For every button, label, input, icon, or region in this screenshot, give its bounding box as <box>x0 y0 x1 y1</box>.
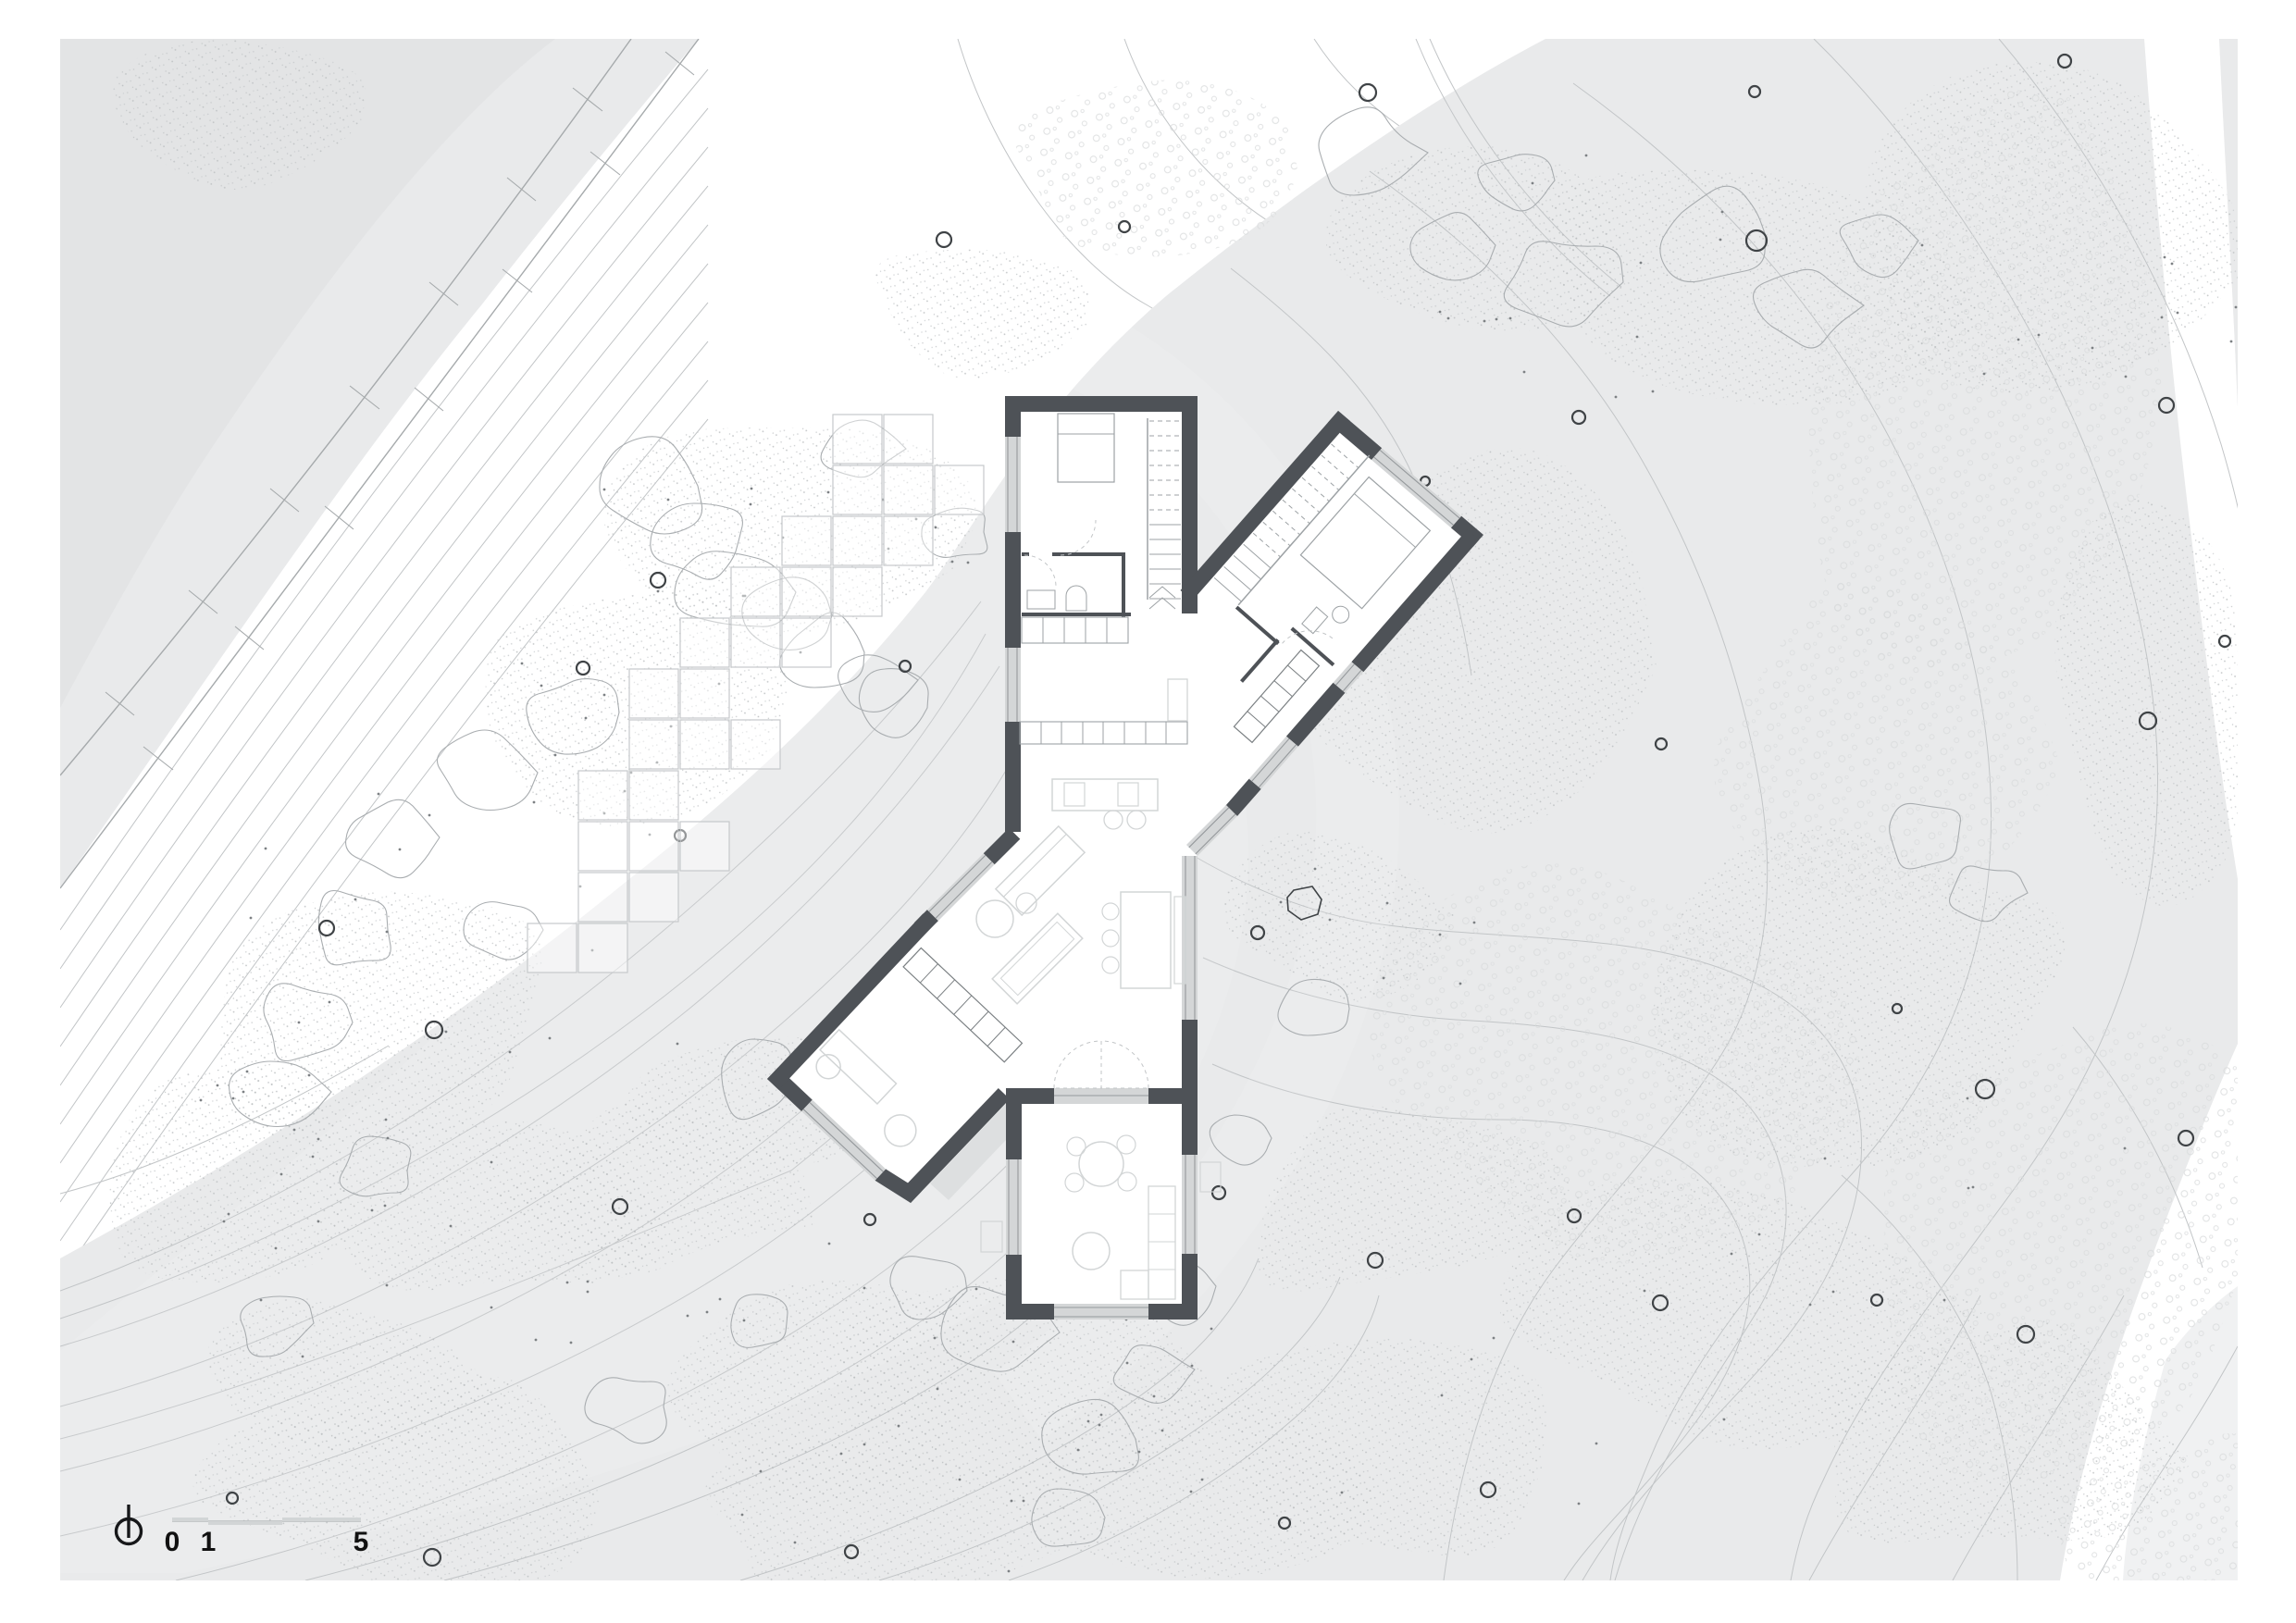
svg-text:0: 0 <box>165 1527 180 1557</box>
svg-text:1: 1 <box>201 1527 217 1557</box>
svg-text:5: 5 <box>354 1527 369 1557</box>
